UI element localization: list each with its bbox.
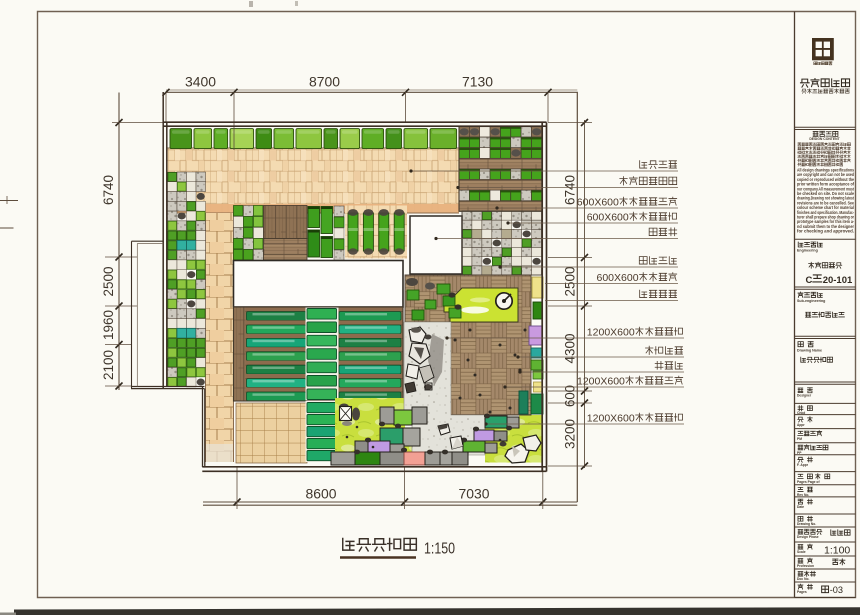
svg-text:8600: 8600: [306, 486, 337, 502]
svg-text:F. Appr: F. Appr: [797, 463, 809, 467]
svg-text:-03: -03: [830, 585, 843, 595]
svg-text:1200X600: 1200X600: [577, 376, 625, 388]
svg-text:600: 600: [563, 385, 578, 407]
svg-text:Date: Date: [797, 505, 804, 509]
svg-text:1960: 1960: [101, 310, 116, 340]
svg-text:1200X600: 1200X600: [587, 413, 635, 425]
svg-text:8700: 8700: [309, 74, 340, 90]
svg-text:Doc No.: Doc No.: [797, 577, 810, 581]
svg-text:C: C: [806, 275, 813, 286]
svg-text:Engineering: Engineering: [797, 249, 818, 253]
svg-text:Pages Page of: Pages Page of: [797, 480, 820, 484]
svg-text:7030: 7030: [459, 486, 490, 502]
svg-text:Profession: Profession: [797, 564, 814, 568]
svg-text:Drawing Name: Drawing Name: [797, 349, 822, 353]
svg-text:2100: 2100: [101, 350, 116, 380]
svg-text:Pages: Pages: [797, 590, 807, 594]
svg-text:2500: 2500: [101, 267, 116, 297]
svg-text:20-101: 20-101: [823, 275, 853, 286]
svg-text:DESIGN CONTENT: DESIGN CONTENT: [809, 137, 840, 141]
svg-text:1200X600: 1200X600: [587, 327, 635, 339]
svg-text:1:150: 1:150: [424, 541, 455, 558]
svg-text:Designer: Designer: [797, 394, 812, 398]
svg-text:PM: PM: [797, 437, 802, 441]
svg-text:Design Phase: Design Phase: [797, 535, 819, 539]
svg-text:Drawing No.: Drawing No.: [797, 522, 816, 526]
svg-text:6740: 6740: [563, 175, 578, 205]
svg-text:1:100: 1:100: [824, 545, 850, 557]
svg-text:3200: 3200: [563, 419, 578, 449]
svg-text:600X600: 600X600: [597, 272, 639, 284]
svg-text:Sub-engineering: Sub-engineering: [797, 299, 825, 303]
svg-text:7130: 7130: [462, 74, 493, 90]
svg-text:600X600: 600X600: [577, 197, 619, 209]
svg-text:6740: 6740: [101, 175, 116, 205]
svg-text:Appr: Appr: [797, 423, 805, 427]
svg-text:2500: 2500: [563, 267, 578, 297]
svg-text:Rev No.: Rev No.: [797, 493, 809, 497]
svg-text:3400: 3400: [185, 74, 216, 90]
svg-text:Scale: Scale: [797, 550, 806, 554]
svg-text:for checking and approved.: for checking and approved.: [797, 229, 854, 234]
svg-text:600X600: 600X600: [587, 212, 629, 224]
